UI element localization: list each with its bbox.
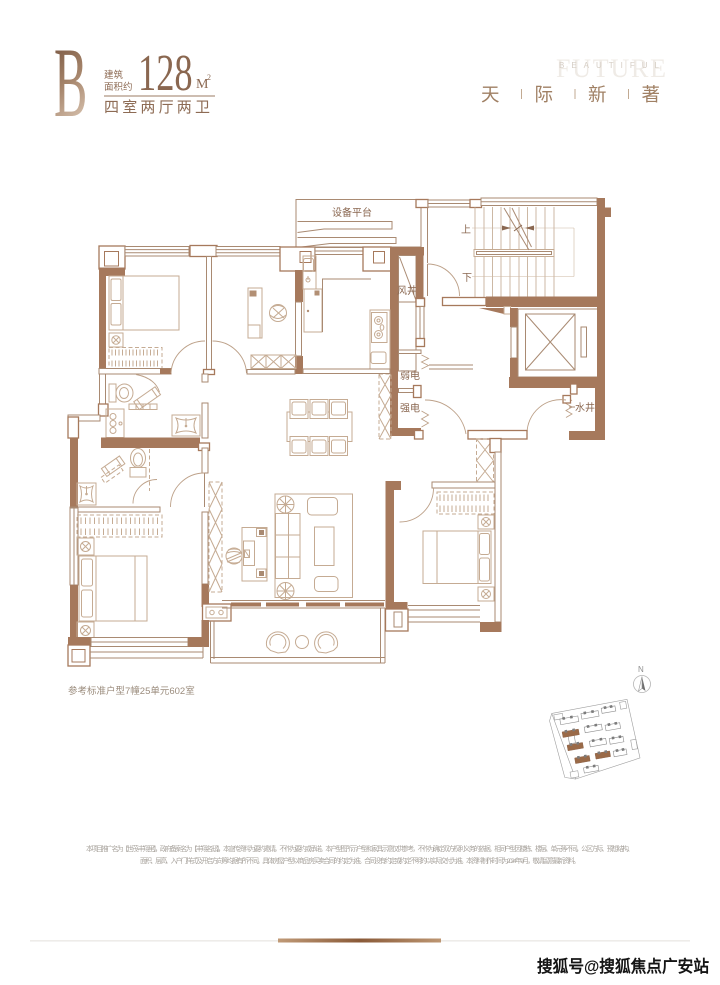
svg-text:强电: 强电 bbox=[400, 402, 420, 415]
svg-text:B: B bbox=[54, 29, 87, 139]
svg-text:本项目推广名为【世茂·丰翔里】，政府备案名为【丰翔名邸】，本: 本项目推广名为【世茂·丰翔里】，政府备案名为【丰翔名邸】，本宣传资料为要约邀请，… bbox=[86, 844, 634, 853]
svg-text:风井: 风井 bbox=[397, 284, 417, 297]
svg-text:面积、层高、入户门样式及开启方向等均据有所不同。具体房屋户型: 面积、层高、入户门样式及开启方向等均据有所不同。具体房屋户型以商品房买卖合同的约… bbox=[140, 856, 580, 865]
svg-text:建筑: 建筑 bbox=[104, 69, 124, 81]
svg-text:BEAUTIFUL: BEAUTIFUL bbox=[559, 61, 660, 70]
svg-text:下: 下 bbox=[462, 273, 472, 284]
svg-text:天际新著: 天际新著 bbox=[481, 84, 695, 105]
svg-text:设备平台: 设备平台 bbox=[332, 206, 372, 219]
svg-text:弱电: 弱电 bbox=[400, 369, 420, 382]
svg-text:上: 上 bbox=[461, 224, 471, 236]
svg-text:参考标准户型7幢25单元602室: 参考标准户型7幢25单元602室 bbox=[68, 685, 195, 697]
svg-text:N: N bbox=[638, 665, 644, 674]
svg-text:面积约: 面积约 bbox=[104, 81, 133, 93]
svg-text:搜狐号@搜狐焦点广安站: 搜狐号@搜狐焦点广安站 bbox=[537, 956, 709, 976]
svg-text:128: 128 bbox=[138, 44, 193, 102]
svg-text:2: 2 bbox=[207, 73, 211, 82]
svg-text:水井: 水井 bbox=[575, 401, 595, 414]
